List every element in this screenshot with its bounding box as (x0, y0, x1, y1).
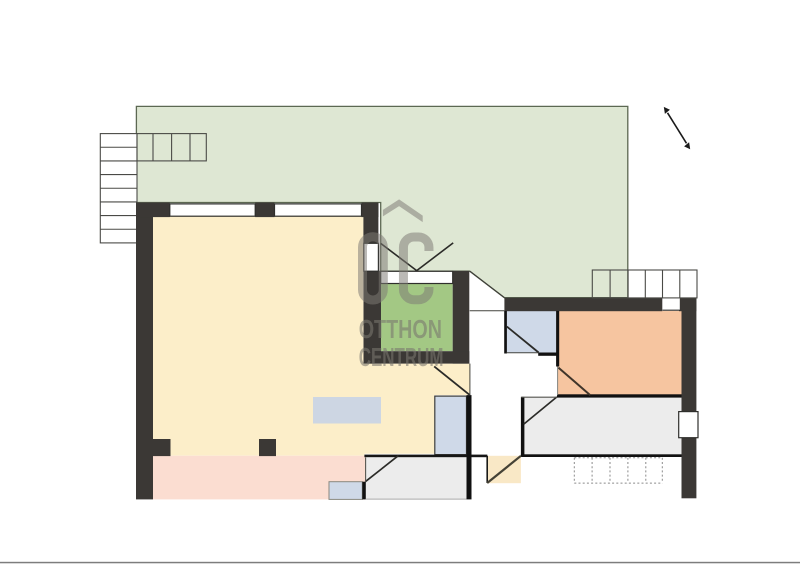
svg-text:CENTRUM: CENTRUM (359, 344, 444, 372)
svg-text:OTTHON: OTTHON (359, 316, 442, 344)
